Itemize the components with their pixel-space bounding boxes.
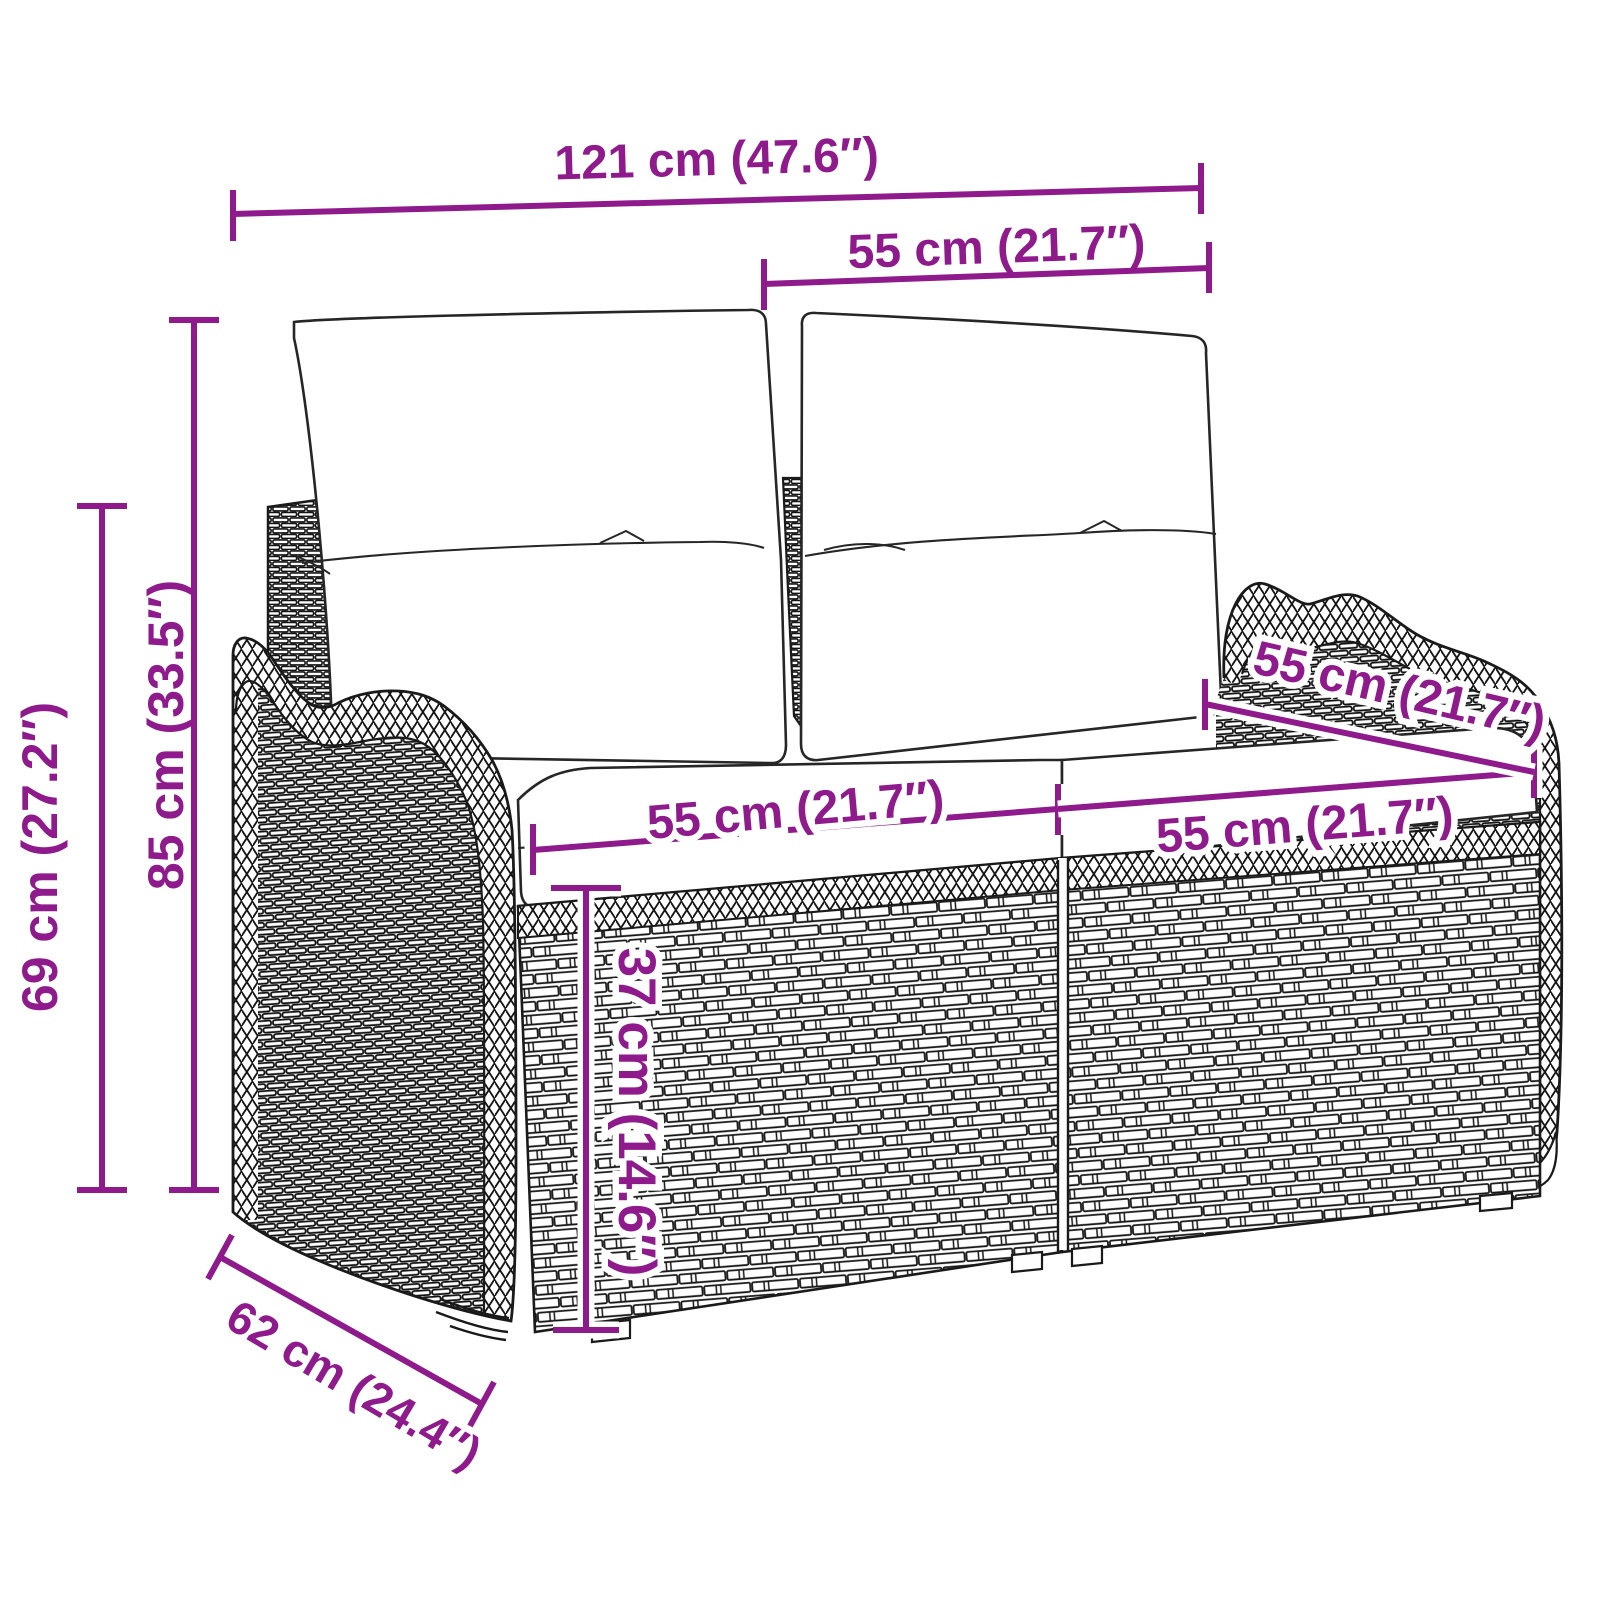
svg-text:121 cm (47.6″): 121 cm (47.6″) (554, 128, 880, 190)
svg-text:69 cm (27.2″): 69 cm (27.2″) (12, 702, 68, 1012)
svg-text:85 cm (33.5″): 85 cm (33.5″) (138, 580, 194, 890)
svg-text:37 cm (14.6″): 37 cm (14.6″) (607, 948, 666, 1277)
svg-text:55 cm (21.7″): 55 cm (21.7″) (847, 216, 1146, 279)
